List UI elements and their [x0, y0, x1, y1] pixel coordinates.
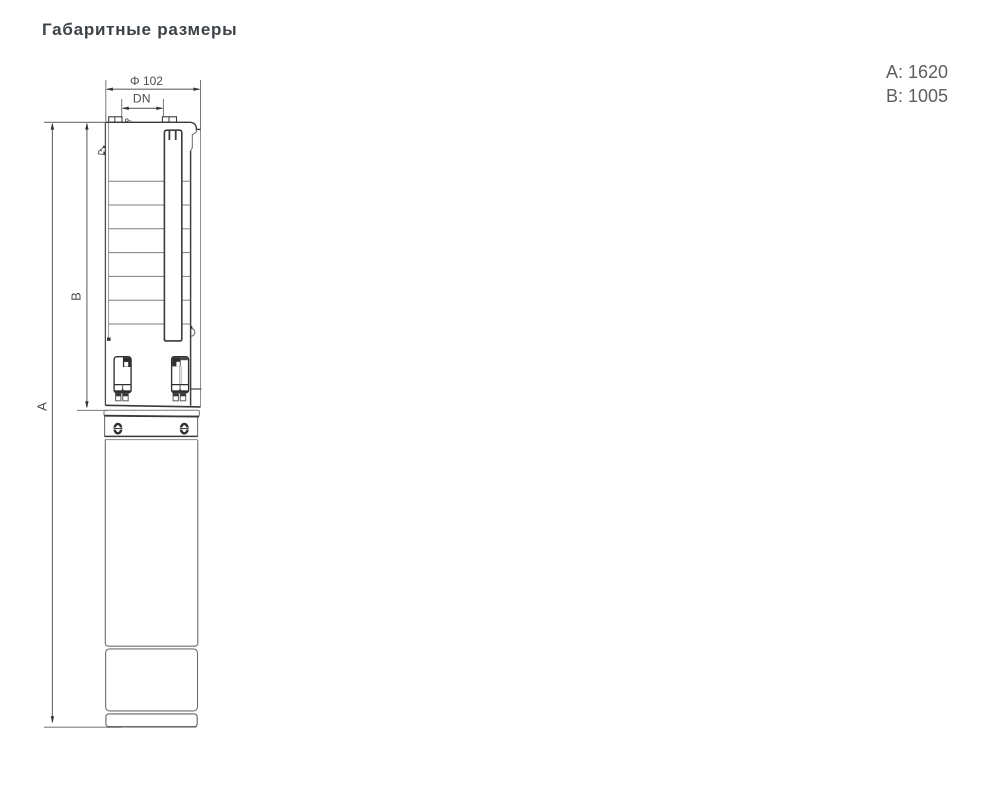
svg-text:A: A — [35, 402, 50, 411]
svg-text:B: B — [69, 292, 84, 301]
svg-text:DN: DN — [133, 92, 151, 106]
svg-text:Φ 102: Φ 102 — [130, 74, 163, 88]
